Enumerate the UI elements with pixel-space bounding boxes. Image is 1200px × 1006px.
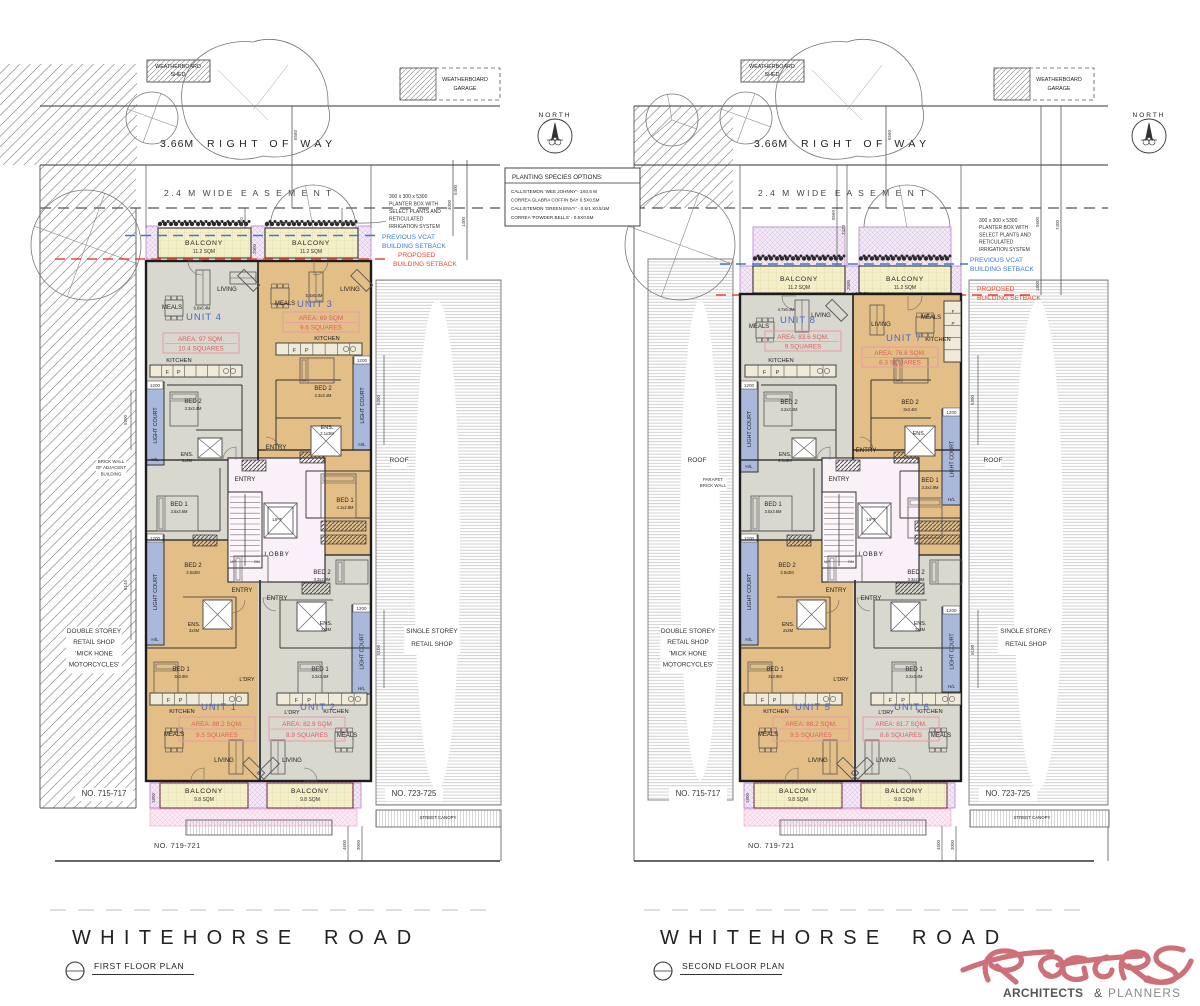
svg-text:5600: 5600	[1035, 216, 1040, 227]
svg-text:ROAD: ROAD	[324, 927, 421, 949]
svg-text:BED 1: BED 1	[764, 502, 782, 508]
svg-text:DOUBLE STOREY: DOUBLE STOREY	[67, 628, 122, 635]
svg-text:NO. 719-721: NO. 719-721	[154, 841, 201, 850]
svg-text:KITCHEN: KITCHEN	[763, 709, 788, 715]
svg-text:H/L: H/L	[151, 637, 159, 642]
svg-text:LIVING: LIVING	[811, 313, 831, 319]
svg-text:BUILDING SETBACK: BUILDING SETBACK	[382, 243, 446, 250]
svg-text:3.5x3M: 3.5x3M	[186, 570, 200, 575]
svg-text:ROAD: ROAD	[912, 927, 1009, 949]
svg-text:NORTH: NORTH	[539, 112, 572, 119]
svg-text:BUILDING SETBACK: BUILDING SETBACK	[970, 266, 1034, 273]
svg-text:ROOF: ROOF	[389, 457, 408, 464]
svg-text:ROOF: ROOF	[983, 457, 1002, 464]
svg-text:LIVING: LIVING	[340, 287, 360, 293]
svg-text:AREA: 83.6 SQM.: AREA: 83.6 SQM.	[777, 334, 829, 341]
svg-text:BALCONY: BALCONY	[779, 788, 817, 795]
svg-text:6.6x6.4M: 6.6x6.4M	[194, 306, 211, 311]
svg-text:LIVING: LIVING	[217, 287, 237, 293]
svg-text:BED 1: BED 1	[336, 498, 354, 504]
svg-text:UNIT 7: UNIT 7	[886, 333, 922, 344]
svg-text:1200: 1200	[356, 606, 367, 611]
svg-text:ENTRY: ENTRY	[235, 476, 256, 483]
svg-text:STREET CANOPY: STREET CANOPY	[419, 815, 456, 820]
svg-text:F: F	[952, 309, 955, 314]
svg-text:1200: 1200	[744, 383, 755, 388]
svg-text:SHED: SHED	[765, 72, 780, 78]
svg-text:BUILDING SETBACK: BUILDING SETBACK	[977, 295, 1041, 302]
svg-text:'MICK HONE: 'MICK HONE	[669, 650, 706, 657]
svg-text:9.8 SQM: 9.8 SQM	[300, 797, 320, 803]
svg-text:WHITEHORSE: WHITEHORSE	[660, 927, 889, 949]
svg-text:BALCONY: BALCONY	[885, 788, 923, 795]
svg-text:RETAIL SHOP: RETAIL SHOP	[73, 639, 115, 646]
svg-text:8.8 SQUARES: 8.8 SQUARES	[880, 732, 922, 739]
svg-text:ENTRY: ENTRY	[266, 444, 287, 451]
svg-text:BED 2: BED 2	[901, 400, 919, 406]
svg-text:8560: 8560	[831, 209, 836, 220]
svg-text:WEATHERBOARD: WEATHERBOARD	[1036, 77, 1082, 83]
svg-text:H/L: H/L	[948, 497, 956, 502]
svg-text:DN: DN	[254, 560, 260, 564]
svg-text:9.8 SQM: 9.8 SQM	[894, 797, 914, 803]
svg-text:ENTRY: ENTRY	[232, 587, 253, 594]
svg-text:P: P	[305, 348, 309, 354]
svg-text:H/L: H/L	[948, 684, 956, 689]
svg-text:&: &	[1094, 986, 1102, 1000]
svg-text:LIGHT COURT: LIGHT COURT	[747, 410, 753, 447]
svg-text:3.3x2.8M: 3.3x2.8M	[314, 577, 331, 582]
svg-text:1200: 1200	[150, 383, 161, 388]
svg-text:3.2x2.8M: 3.2x2.8M	[922, 485, 939, 490]
svg-text:BED 2: BED 2	[780, 400, 798, 406]
svg-text:UNIT 4: UNIT 4	[186, 312, 222, 323]
svg-text:ENTRY: ENTRY	[826, 587, 847, 594]
svg-text:3x3.4M: 3x3.4M	[903, 407, 917, 412]
svg-text:H/L: H/L	[745, 637, 753, 642]
svg-text:4600: 4600	[936, 839, 941, 850]
svg-text:BUILDING: BUILDING	[101, 471, 122, 476]
svg-text:H/L: H/L	[358, 686, 366, 691]
svg-text:3400: 3400	[239, 217, 244, 227]
svg-text:L'DRY: L'DRY	[833, 677, 849, 683]
svg-text:3.2x3.4M: 3.2x3.4M	[781, 407, 798, 412]
svg-text:BED 2: BED 2	[314, 386, 332, 392]
svg-text:GARAGE: GARAGE	[453, 86, 476, 92]
svg-text:P: P	[773, 698, 777, 704]
svg-text:ENTRY: ENTRY	[861, 595, 882, 602]
svg-text:BALCONY: BALCONY	[780, 276, 818, 283]
svg-text:AREA: 88.2 SQM.: AREA: 88.2 SQM.	[191, 721, 243, 728]
svg-text:1200: 1200	[357, 358, 368, 363]
svg-text:7420: 7420	[841, 224, 846, 235]
svg-text:SECOND FLOOR PLAN: SECOND FLOOR PLAN	[682, 961, 785, 971]
svg-text:5100: 5100	[376, 644, 381, 655]
svg-text:11.2 SQM: 11.2 SQM	[193, 249, 215, 255]
svg-text:9.8 SQM: 9.8 SQM	[788, 797, 808, 803]
svg-text:2x3M: 2x3M	[189, 628, 200, 633]
svg-text:ENTRY: ENTRY	[856, 447, 877, 454]
svg-text:3.2x3.4M: 3.2x3.4M	[906, 674, 923, 679]
svg-text:PROPOSED: PROPOSED	[398, 252, 436, 259]
svg-text:AREA: 82.9 SQM: AREA: 82.9 SQM	[282, 721, 332, 728]
svg-text:3.2x3.4M: 3.2x3.4M	[312, 674, 329, 679]
svg-text:3.66M: 3.66M	[160, 138, 194, 150]
svg-text:2.4 M WIDE: 2.4 M WIDE	[164, 188, 235, 198]
svg-text:5.4x5.4M: 5.4x5.4M	[306, 293, 323, 298]
svg-text:WEATHERBOARD: WEATHERBOARD	[442, 77, 488, 83]
svg-text:CALLISTEMON 'GREEN ENVY' - 0.5: CALLISTEMON 'GREEN ENVY' - 0.5/1 X0.5/1M	[511, 206, 609, 211]
svg-text:2x3M: 2x3M	[915, 627, 926, 632]
svg-text:8.3 SQUARES: 8.3 SQUARES	[879, 360, 921, 367]
svg-text:L'DRY: L'DRY	[878, 710, 894, 716]
svg-text:11.2 SQM: 11.2 SQM	[894, 285, 916, 291]
svg-text:1400: 1400	[461, 216, 466, 227]
svg-text:E A S E M E N T: E A S E M E N T	[241, 188, 333, 198]
svg-text:4600: 4600	[342, 839, 347, 850]
svg-text:PLANTER BOX WITH: PLANTER BOX WITH	[389, 202, 439, 208]
svg-text:RETAIL SHOP: RETAIL SHOP	[411, 641, 453, 648]
svg-text:LIVING: LIVING	[282, 758, 302, 764]
svg-text:4.7x5.4M: 4.7x5.4M	[852, 291, 869, 296]
svg-text:3.3x2.8M: 3.3x2.8M	[908, 577, 925, 582]
svg-text:BALCONY: BALCONY	[185, 240, 223, 247]
svg-text:BED 1: BED 1	[905, 667, 923, 673]
svg-text:BED 1: BED 1	[170, 502, 188, 508]
svg-text:9 SQUARES: 9 SQUARES	[785, 344, 822, 351]
svg-text:CORREA GLABRA COFFIN BAY 0.5X0: CORREA GLABRA COFFIN BAY 0.5X0.5M	[511, 198, 600, 203]
svg-text:BUILDING SETBACK: BUILDING SETBACK	[393, 261, 457, 268]
svg-text:2x3M: 2x3M	[182, 458, 193, 463]
svg-text:LIFT: LIFT	[866, 517, 875, 522]
svg-text:2x3M: 2x3M	[321, 627, 332, 632]
svg-text:KITCHEN: KITCHEN	[166, 358, 191, 364]
svg-text:NO. 719-721: NO. 719-721	[748, 841, 795, 850]
svg-text:9.8 SQM: 9.8 SQM	[194, 797, 214, 803]
svg-text:DOUBLE STOREY: DOUBLE STOREY	[661, 628, 716, 635]
svg-text:MEALS: MEALS	[164, 732, 184, 738]
svg-text:2.1x3M: 2.1x3M	[320, 431, 334, 436]
svg-text:PLANTER BOX WITH: PLANTER BOX WITH	[979, 225, 1029, 231]
svg-text:3000: 3000	[356, 839, 361, 850]
svg-text:UP: UP	[824, 560, 830, 564]
svg-text:CORREA 'POWDER BELLS' - 0.5X0.: CORREA 'POWDER BELLS' - 0.5X0.5M	[511, 215, 594, 220]
svg-text:6145: 6145	[123, 579, 128, 590]
svg-text:2.4 M WIDE: 2.4 M WIDE	[758, 188, 829, 198]
svg-text:2000: 2000	[252, 243, 257, 254]
svg-text:3x3.9M: 3x3.9M	[768, 674, 782, 679]
svg-text:E A S E M E N T: E A S E M E N T	[835, 188, 927, 198]
svg-text:ARCHITECTS: ARCHITECTS	[1003, 986, 1083, 1000]
svg-text:NORTH: NORTH	[1133, 112, 1166, 119]
svg-text:6560: 6560	[887, 129, 892, 140]
svg-text:5200: 5200	[123, 414, 128, 425]
svg-text:L'DRY: L'DRY	[239, 677, 255, 683]
svg-text:9.5 SQUARES: 9.5 SQUARES	[790, 732, 832, 739]
svg-text:BED 1: BED 1	[311, 667, 329, 673]
svg-text:NO. 723-725: NO. 723-725	[392, 789, 437, 798]
svg-text:DN: DN	[848, 560, 854, 564]
svg-text:L'DRY: L'DRY	[284, 710, 300, 716]
svg-text:LIGHT COURT: LIGHT COURT	[950, 440, 956, 477]
svg-text:MOTORCYCLES': MOTORCYCLES'	[663, 662, 713, 669]
svg-text:AREA: 81.7 SQM.: AREA: 81.7 SQM.	[875, 721, 927, 728]
svg-text:5300: 5300	[970, 394, 975, 405]
svg-text:AREA: 88.2 SQM.: AREA: 88.2 SQM.	[785, 721, 837, 728]
svg-text:300 x 300 x 5300: 300 x 300 x 5300	[979, 218, 1018, 224]
svg-text:3x3.9M: 3x3.9M	[174, 674, 188, 679]
svg-text:LIGHT COURT: LIGHT COURT	[747, 573, 753, 610]
svg-text:3.3x3.4M: 3.3x3.4M	[185, 406, 202, 411]
svg-text:MOTORCYCLES': MOTORCYCLES'	[69, 662, 119, 669]
svg-text:H/L: H/L	[358, 442, 366, 447]
svg-text:3000: 3000	[950, 839, 955, 850]
svg-text:RETAIL SHOP: RETAIL SHOP	[667, 639, 709, 646]
svg-text:H/L: H/L	[745, 464, 753, 469]
svg-text:MEALS: MEALS	[275, 301, 295, 307]
svg-text:BALCONY: BALCONY	[292, 240, 330, 247]
svg-text:1800: 1800	[745, 792, 750, 803]
svg-text:ENTRY: ENTRY	[267, 595, 288, 602]
svg-text:3.5x3M: 3.5x3M	[780, 570, 794, 575]
svg-text:BALCONY: BALCONY	[886, 276, 924, 283]
svg-text:AREA: 69 SQM: AREA: 69 SQM	[299, 315, 343, 322]
svg-text:WEATHERBOARD: WEATHERBOARD	[749, 64, 795, 70]
svg-text:RIGHT OF WAY: RIGHT OF WAY	[207, 138, 337, 150]
svg-text:P: P	[951, 321, 954, 326]
svg-text:SELECT PLANTS AND: SELECT PLANTS AND	[389, 209, 441, 215]
svg-text:LIGHT COURT: LIGHT COURT	[360, 387, 366, 424]
svg-text:'MICK HONE: 'MICK HONE	[75, 650, 112, 657]
svg-text:MEALS: MEALS	[931, 733, 951, 739]
svg-text:IRRIGATION SYSTEM: IRRIGATION SYSTEM	[979, 247, 1030, 253]
svg-text:AREA: 76.8 SQM.: AREA: 76.8 SQM.	[874, 350, 926, 357]
svg-text:WEATHERBOARD: WEATHERBOARD	[155, 64, 201, 70]
svg-text:BED 1: BED 1	[172, 667, 190, 673]
svg-text:BED 2: BED 2	[907, 570, 925, 576]
svg-text:2.1x3M: 2.1x3M	[778, 458, 792, 463]
svg-text:PREVIOUS VCAT: PREVIOUS VCAT	[382, 234, 435, 241]
svg-text:BALCONY: BALCONY	[291, 788, 329, 795]
svg-text:ENTRY: ENTRY	[829, 476, 850, 483]
svg-text:5400: 5400	[453, 184, 458, 195]
svg-text:3.3x3.4M: 3.3x3.4M	[315, 393, 332, 398]
svg-text:ROOF: ROOF	[687, 457, 706, 464]
svg-text:BALCONY: BALCONY	[185, 788, 223, 795]
svg-text:BRICK WALL: BRICK WALL	[700, 483, 727, 488]
svg-text:CALLISTEMON 'WEE JOHNNY'- 1X0: CALLISTEMON 'WEE JOHNNY'- 1X0.5 M	[511, 189, 597, 194]
svg-text:BRICK WALL: BRICK WALL	[98, 459, 125, 464]
svg-text:5100: 5100	[970, 644, 975, 655]
svg-text:AREA: 97 SQM.: AREA: 97 SQM.	[178, 336, 224, 343]
svg-text:PARAPET: PARAPET	[703, 477, 723, 482]
svg-text:BED 2: BED 2	[778, 563, 796, 569]
svg-text:LIVING: LIVING	[876, 758, 896, 764]
svg-text:BED 1: BED 1	[766, 667, 784, 673]
svg-text:BED 2: BED 2	[184, 563, 202, 569]
svg-text:LIGHT COURT: LIGHT COURT	[950, 633, 956, 670]
svg-text:8.9 SQUARES: 8.9 SQUARES	[286, 732, 328, 739]
svg-text:FIRST FLOOR PLAN: FIRST FLOOR PLAN	[94, 961, 184, 971]
svg-text:LIVING: LIVING	[808, 758, 828, 764]
svg-text:SINGLE STOREY: SINGLE STOREY	[406, 628, 458, 635]
svg-text:LIGHT COURT: LIGHT COURT	[153, 573, 159, 610]
svg-text:KITCHEN: KITCHEN	[169, 709, 194, 715]
svg-text:11.2 SQM: 11.2 SQM	[300, 249, 322, 255]
svg-text:KITCHEN: KITCHEN	[768, 358, 793, 364]
svg-text:STREET CANOPY: STREET CANOPY	[1013, 815, 1050, 820]
svg-text:KITCHEN: KITCHEN	[925, 337, 950, 343]
svg-text:UNIT 3: UNIT 3	[297, 299, 333, 310]
svg-text:RIGHT OF WAY: RIGHT OF WAY	[801, 138, 931, 150]
svg-text:UNIT 6: UNIT 6	[894, 702, 930, 713]
svg-text:MEALS: MEALS	[758, 732, 778, 738]
svg-text:4.1x2.8M: 4.1x2.8M	[337, 505, 354, 510]
svg-text:2x3M: 2x3M	[783, 628, 794, 633]
svg-text:NO. 723-725: NO. 723-725	[986, 789, 1031, 798]
svg-text:LIGHT COURT: LIGHT COURT	[360, 633, 366, 670]
svg-text:BED 2: BED 2	[184, 399, 202, 405]
svg-text:2000: 2000	[846, 279, 851, 290]
svg-text:PLANNERS: PLANNERS	[1108, 986, 1181, 1000]
svg-text:P: P	[776, 370, 780, 376]
svg-text:3.5x3.6M: 3.5x3.6M	[171, 509, 188, 514]
svg-text:1200: 1200	[946, 410, 957, 415]
svg-text:MEALS: MEALS	[337, 733, 357, 739]
svg-text:PROPOSED: PROPOSED	[977, 286, 1015, 293]
svg-text:LIFT: LIFT	[272, 517, 281, 522]
svg-text:BED 1: BED 1	[921, 478, 939, 484]
svg-text:11.2 SQM: 11.2 SQM	[788, 285, 810, 291]
svg-text:3.66M: 3.66M	[754, 138, 788, 150]
svg-text:ENS.: ENS.	[913, 431, 926, 437]
svg-text:1800: 1800	[151, 792, 156, 803]
svg-text:MEALS: MEALS	[162, 305, 182, 311]
svg-text:4.7x6.4M: 4.7x6.4M	[778, 307, 795, 312]
svg-text:UNIT 2: UNIT 2	[300, 702, 336, 713]
svg-text:300 x 300 x 5300: 300 x 300 x 5300	[389, 194, 428, 200]
svg-text:WHITEHORSE: WHITEHORSE	[72, 927, 301, 949]
svg-text:UP: UP	[230, 560, 236, 564]
svg-text:1200: 1200	[946, 608, 957, 613]
svg-text:9.5 SQUARES: 9.5 SQUARES	[196, 732, 238, 739]
svg-text:9.6 SQUARES: 9.6 SQUARES	[300, 325, 342, 332]
svg-text:P: P	[179, 698, 183, 704]
svg-text:MEALS: MEALS	[749, 324, 769, 330]
svg-text:NO. 715-717: NO. 715-717	[676, 789, 721, 798]
svg-text:LIGHT COURT: LIGHT COURT	[153, 407, 159, 444]
svg-text:BED 2: BED 2	[313, 570, 331, 576]
svg-text:7400: 7400	[1055, 219, 1060, 230]
svg-text:P: P	[177, 370, 181, 376]
svg-text:RETICULATED: RETICULATED	[389, 217, 424, 223]
svg-text:OF ADJACENT: OF ADJACENT	[96, 465, 127, 470]
svg-text:PREVIOUS VCAT: PREVIOUS VCAT	[970, 257, 1023, 264]
svg-text:4000: 4000	[447, 199, 452, 210]
svg-text:UNIT 1: UNIT 1	[201, 702, 237, 713]
svg-text:LIVING: LIVING	[871, 322, 891, 328]
svg-text:UNIT 5: UNIT 5	[795, 702, 831, 713]
svg-text:3.5x3.6M: 3.5x3.6M	[765, 509, 782, 514]
svg-text:10.4 SQUARES: 10.4 SQUARES	[178, 346, 223, 353]
svg-text:LIVING: LIVING	[214, 758, 234, 764]
svg-text:RETAIL SHOP: RETAIL SHOP	[1005, 641, 1047, 648]
svg-text:MEALS: MEALS	[921, 315, 941, 321]
svg-text:5300: 5300	[376, 394, 381, 405]
svg-text:IRRIGATION SYSTEM: IRRIGATION SYSTEM	[389, 224, 440, 230]
svg-text:1800: 1800	[1035, 280, 1040, 291]
svg-text:SELECT PLANTS AND: SELECT PLANTS AND	[979, 232, 1031, 238]
svg-text:6560: 6560	[293, 129, 298, 140]
svg-text:GARAGE: GARAGE	[1047, 86, 1070, 92]
svg-text:PLANTING SPECIES OPTIONS:: PLANTING SPECIES OPTIONS:	[512, 174, 603, 181]
svg-text:KITCHEN: KITCHEN	[314, 336, 339, 342]
svg-text:SINGLE STOREY: SINGLE STOREY	[1000, 628, 1052, 635]
svg-text:NO. 715-717: NO. 715-717	[82, 789, 127, 798]
svg-text:RETICULATED: RETICULATED	[979, 240, 1014, 246]
svg-text:SHED: SHED	[171, 72, 186, 78]
